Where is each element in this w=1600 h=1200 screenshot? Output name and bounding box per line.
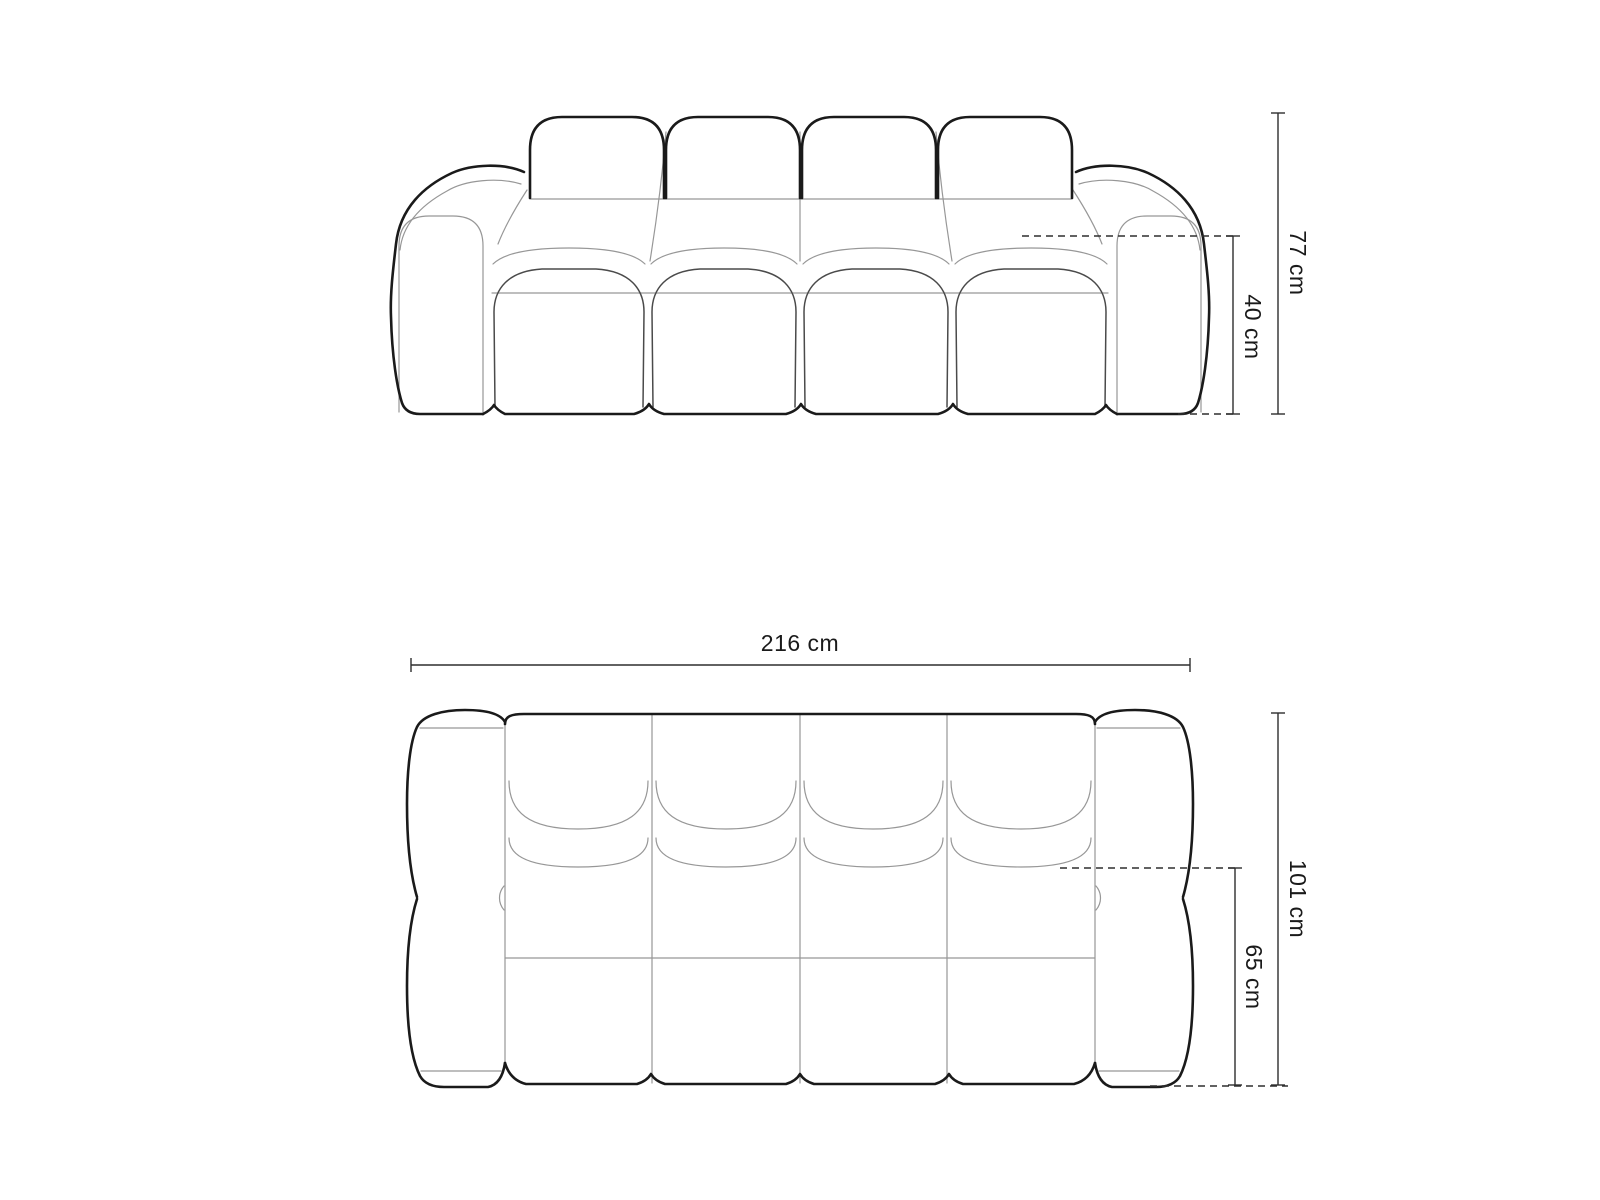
left-arm-outline bbox=[391, 166, 524, 414]
sofa-top-view: 216 cm 101 cm 65 cm bbox=[407, 630, 1311, 1087]
seat-cushion-outline bbox=[956, 269, 1106, 407]
top-view-dimensions: 216 cm 101 cm 65 cm bbox=[411, 630, 1311, 1086]
top-view-seams bbox=[420, 715, 1180, 1083]
seat-back-arc bbox=[651, 248, 797, 264]
seat-back-arc bbox=[803, 248, 949, 264]
right-arm-top-seam bbox=[1079, 180, 1200, 250]
sofa-dimension-diagram: 77 cm 40 cm bbox=[0, 0, 1600, 1200]
left-arm-back-seam bbox=[498, 190, 527, 244]
front-view-dimensions: 77 cm 40 cm bbox=[1022, 113, 1311, 414]
left-arm-top-seam bbox=[400, 180, 521, 250]
front-view-outline bbox=[391, 117, 1209, 414]
right-arm-panel-seam bbox=[1117, 216, 1201, 412]
right-arm-front-section bbox=[1095, 899, 1193, 1087]
sofa-front-view: 77 cm 40 cm bbox=[391, 113, 1311, 414]
left-arm-panel-seam bbox=[399, 216, 483, 412]
right-arm-back-section bbox=[1095, 710, 1193, 897]
left-arm-front-section bbox=[407, 899, 505, 1087]
back-cushion-outline bbox=[530, 117, 664, 198]
front-bottom-edge bbox=[483, 404, 1117, 414]
overall-depth-label: 101 cm bbox=[1285, 860, 1311, 938]
back-cushion-outline bbox=[666, 117, 800, 198]
seat-cushion-outline bbox=[652, 269, 796, 407]
diagram-svg: 77 cm 40 cm bbox=[0, 0, 1600, 1200]
back-cushion-seam bbox=[656, 838, 796, 867]
headrest-seam bbox=[656, 781, 796, 829]
seat-back-arc bbox=[955, 248, 1107, 264]
overall-width-label: 216 cm bbox=[761, 630, 839, 656]
left-arm-back-section bbox=[407, 710, 505, 897]
headrest-seam bbox=[804, 781, 943, 829]
top-dimension-lines bbox=[411, 658, 1285, 1085]
arm-notch-seam bbox=[500, 886, 505, 910]
seat-back-arc bbox=[493, 248, 645, 264]
overall-height-label: 77 cm bbox=[1285, 230, 1311, 295]
seat-cushion-outline bbox=[804, 269, 948, 407]
back-cushion-outline bbox=[802, 117, 936, 198]
front-view-seat-cushions bbox=[494, 269, 1106, 407]
seat-depth-label: 65 cm bbox=[1241, 944, 1267, 1009]
front-dimension-lines bbox=[1226, 113, 1285, 414]
seat-cushion-outline bbox=[494, 269, 644, 407]
headrest-seam bbox=[509, 781, 648, 829]
seat-height-label: 40 cm bbox=[1240, 294, 1266, 359]
back-cushion-seam bbox=[509, 838, 648, 867]
right-arm-outline bbox=[1076, 166, 1209, 414]
arm-notch-seam bbox=[1096, 886, 1101, 910]
back-cushion-seam bbox=[804, 838, 943, 867]
back-cushion-seam bbox=[951, 838, 1091, 867]
back-cushion-outline bbox=[938, 117, 1072, 198]
headrest-seam bbox=[951, 781, 1091, 829]
